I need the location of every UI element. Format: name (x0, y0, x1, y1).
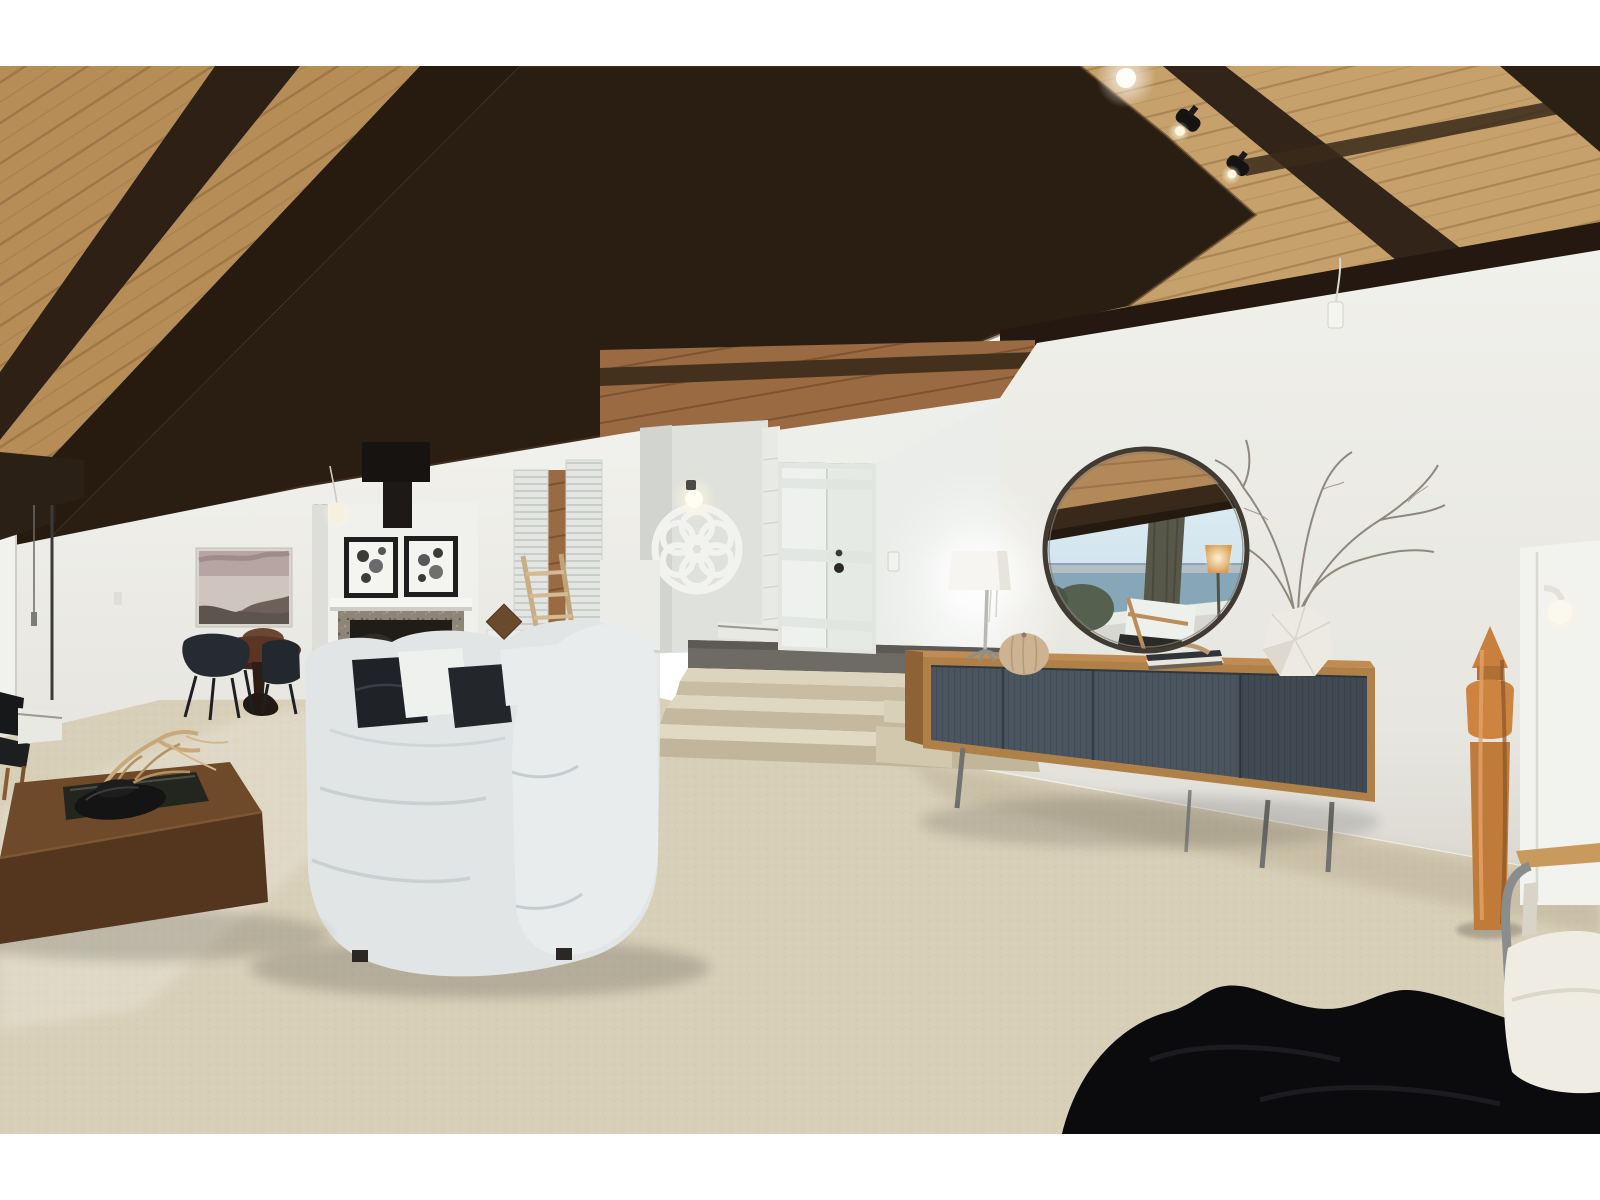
wall-outlet-dining-1 (114, 592, 122, 605)
totem-bulb (1466, 680, 1514, 740)
credenza-floor-shadow (920, 796, 1380, 848)
pendant-bulb (329, 503, 345, 523)
door-knob (834, 563, 844, 573)
sconce-mount (686, 480, 696, 490)
lamp-stem (985, 590, 987, 652)
mantel-shadow (330, 607, 472, 611)
chair-strap (1522, 882, 1538, 936)
living-room-scene (0, 0, 1600, 1200)
louver-door-left (514, 470, 548, 640)
wall-outlet-high (1328, 302, 1343, 328)
mantel-shelf (330, 598, 472, 608)
credenza-right-shade (1240, 674, 1367, 793)
reflection-lamp-glow (1202, 542, 1234, 574)
spotlight-1-lens (1175, 126, 1185, 136)
entry-sconce (672, 477, 716, 521)
heater-body (18, 708, 62, 744)
door-deadbolt (836, 550, 843, 557)
sofa-foot-left (352, 950, 368, 962)
flue-pipe (383, 482, 412, 528)
recessed-light (1116, 68, 1136, 88)
dining-chair-left (182, 634, 250, 677)
panel-sconce-globe (1548, 600, 1572, 624)
front-double-door (778, 462, 876, 654)
light-switch (888, 552, 899, 571)
dining-chair-right (262, 640, 300, 684)
flue-box (362, 442, 430, 482)
listing-photo-page (0, 0, 1600, 1200)
sconce-globe (685, 490, 703, 508)
sofa-foot-right (556, 948, 572, 960)
photo-area (0, 48, 1600, 1134)
door-right-leaf-shade (827, 470, 872, 650)
pillow-white-right (500, 644, 566, 706)
totem-highlight (1481, 650, 1483, 920)
credenza-left-side (905, 650, 923, 745)
seascape-art (196, 548, 292, 627)
cord-handle (31, 612, 37, 626)
lamp-pull-cord-2 (996, 590, 997, 617)
chair-cushion (1504, 931, 1600, 1093)
pillow-black-right (448, 664, 512, 728)
gourd-stem-dimple (1022, 633, 1027, 638)
spotlight-2-lens (1228, 170, 1237, 179)
botanical-print-right-mat (409, 541, 453, 592)
left-baseboard-heater (18, 708, 62, 744)
reflection-lamp-pole (1218, 573, 1219, 620)
